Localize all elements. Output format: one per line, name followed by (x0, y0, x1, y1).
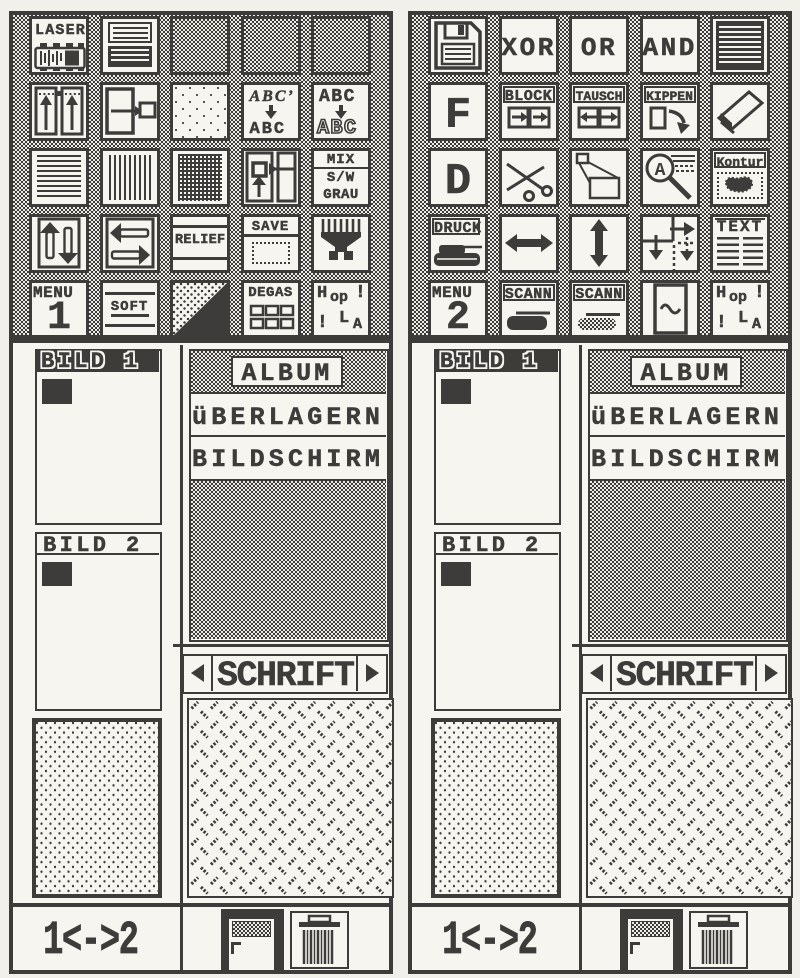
svg-text:A: A (654, 161, 665, 181)
